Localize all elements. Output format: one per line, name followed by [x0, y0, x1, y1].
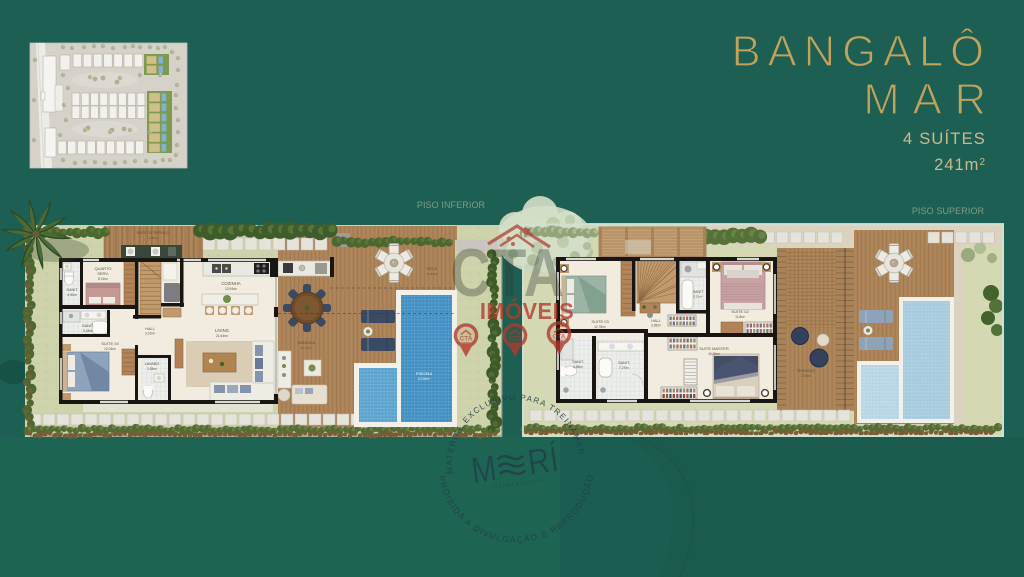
svg-text:SANIT: SANIT — [66, 288, 78, 292]
svg-text:SERV.: SERV. — [97, 271, 109, 276]
svg-text:11,8m²: 11,8m² — [735, 315, 745, 319]
svg-text:16,00m²: 16,00m² — [708, 352, 720, 356]
svg-text:5,15m²: 5,15m² — [693, 295, 702, 299]
svg-text:SANIT.: SANIT. — [82, 324, 94, 328]
svg-text:3,95m²: 3,95m² — [651, 324, 661, 328]
svg-text:LIVING: LIVING — [215, 328, 230, 333]
svg-text:SUITE 04: SUITE 04 — [101, 341, 119, 346]
svg-text:21,64m²: 21,64m² — [216, 334, 229, 338]
svg-text:241m2: 241m2 — [934, 156, 986, 174]
svg-text:SANIT.: SANIT. — [618, 361, 630, 365]
svg-text:4,85m²: 4,85m² — [573, 365, 583, 369]
svg-text:3,15m²: 3,15m² — [145, 332, 155, 336]
svg-text:12,04m²: 12,04m² — [104, 347, 116, 351]
svg-text:CTA: CTA — [553, 334, 566, 341]
svg-text:CTA: CTA — [460, 336, 473, 343]
svg-text:IMÓVEIS: IMÓVEIS — [480, 298, 574, 324]
svg-text:3,18m²: 3,18m² — [83, 329, 93, 333]
svg-text:ÁREA DE SERVIÇO: ÁREA DE SERVIÇO — [137, 231, 170, 235]
svg-text:MAR: MAR — [863, 76, 999, 124]
svg-text:SUITE 03: SUITE 03 — [591, 319, 609, 324]
svg-text:BANGALÔ: BANGALÔ — [732, 26, 991, 76]
svg-text:11,85m²: 11,85m² — [427, 272, 438, 276]
svg-text:4,00m²: 4,00m² — [67, 293, 77, 297]
svg-text:2,53m²: 2,53m² — [147, 367, 157, 371]
svg-text:PISO INFERIOR: PISO INFERIOR — [417, 200, 486, 210]
svg-text:SANIT: SANIT — [693, 290, 704, 294]
svg-text:4,99m²: 4,99m² — [148, 236, 157, 240]
svg-text:VARANDA: VARANDA — [297, 341, 316, 345]
svg-text:COZINHA: COZINHA — [221, 281, 240, 286]
svg-text:19,35m²: 19,35m² — [418, 377, 431, 381]
svg-text:LAVABO: LAVABO — [145, 362, 160, 366]
svg-text:4 SUÍTES: 4 SUÍTES — [903, 129, 986, 148]
svg-text:SUITE 02: SUITE 02 — [731, 309, 749, 314]
svg-text:DECK: DECK — [427, 267, 438, 271]
svg-text:PISO SUPERIOR: PISO SUPERIOR — [912, 206, 985, 216]
svg-text:PISCINA: PISCINA — [416, 371, 432, 376]
svg-text:SUITE MASTER: SUITE MASTER — [699, 346, 729, 351]
svg-text:HALL: HALL — [651, 319, 661, 323]
svg-text:8,01m²: 8,01m² — [98, 277, 108, 281]
svg-text:SANIT.: SANIT. — [572, 360, 584, 364]
svg-text:7,27m²: 7,27m² — [619, 366, 629, 370]
svg-text:13,9m²: 13,9m² — [801, 374, 811, 378]
svg-text:13,94m²: 13,94m² — [225, 287, 238, 291]
svg-text:12,78m²: 12,78m² — [594, 325, 606, 329]
svg-text:TERRAÇO: TERRAÇO — [797, 369, 816, 373]
svg-text:HALL: HALL — [145, 327, 155, 331]
svg-text:16,70m²: 16,70m² — [300, 346, 311, 350]
svg-text:CTA: CTA — [509, 336, 522, 343]
